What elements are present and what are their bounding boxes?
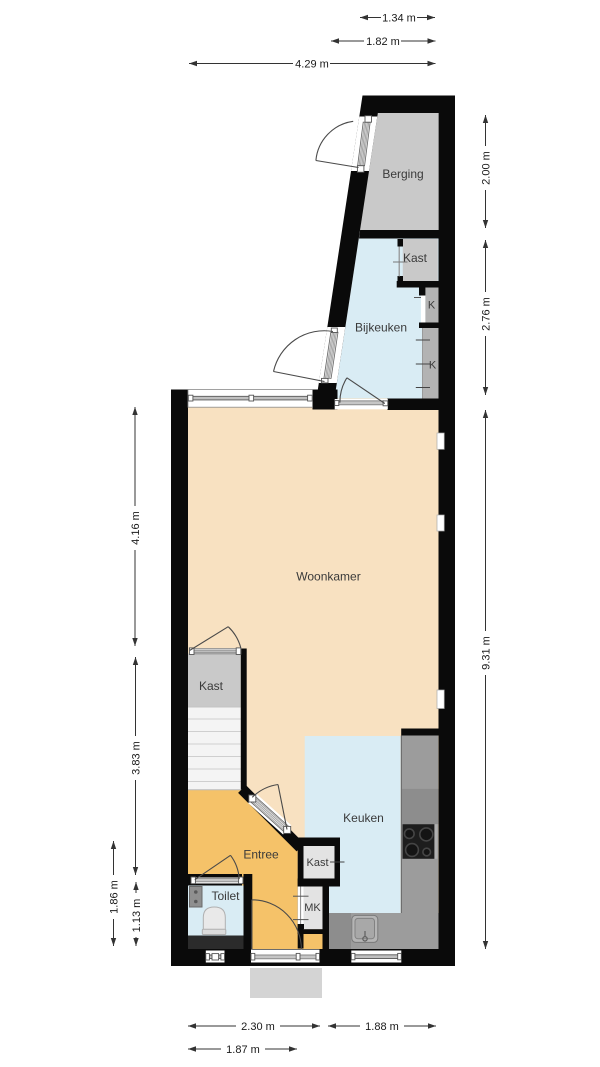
svg-text:9.31 m: 9.31 m xyxy=(481,636,493,670)
svg-text:Kast: Kast xyxy=(306,857,328,869)
svg-text:Entree: Entree xyxy=(243,848,279,862)
svg-text:Woonkamer: Woonkamer xyxy=(296,570,360,584)
svg-text:3.83 m: 3.83 m xyxy=(131,741,143,775)
svg-text:1.87 m: 1.87 m xyxy=(226,1044,260,1056)
svg-text:4.29 m: 4.29 m xyxy=(295,59,329,71)
svg-text:Bijkeuken: Bijkeuken xyxy=(355,321,407,335)
svg-text:Kast: Kast xyxy=(403,251,428,265)
svg-text:Kast: Kast xyxy=(199,679,224,693)
svg-text:1.86 m: 1.86 m xyxy=(109,880,121,914)
svg-text:4.16 m: 4.16 m xyxy=(130,511,142,545)
svg-text:2.30 m: 2.30 m xyxy=(241,1021,275,1033)
svg-text:2.00 m: 2.00 m xyxy=(481,151,493,185)
svg-text:Toilet: Toilet xyxy=(211,889,240,903)
svg-text:K: K xyxy=(428,300,436,312)
svg-text:1.34 m: 1.34 m xyxy=(382,13,416,25)
svg-text:Keuken: Keuken xyxy=(343,811,384,825)
svg-text:2.76 m: 2.76 m xyxy=(481,297,493,331)
svg-text:Berging: Berging xyxy=(382,167,423,181)
svg-text:MK: MK xyxy=(304,902,321,914)
svg-text:1.13 m: 1.13 m xyxy=(131,899,143,933)
svg-text:1.82 m: 1.82 m xyxy=(366,36,400,48)
svg-text:1.88 m: 1.88 m xyxy=(365,1021,399,1033)
svg-text:K: K xyxy=(429,360,437,372)
